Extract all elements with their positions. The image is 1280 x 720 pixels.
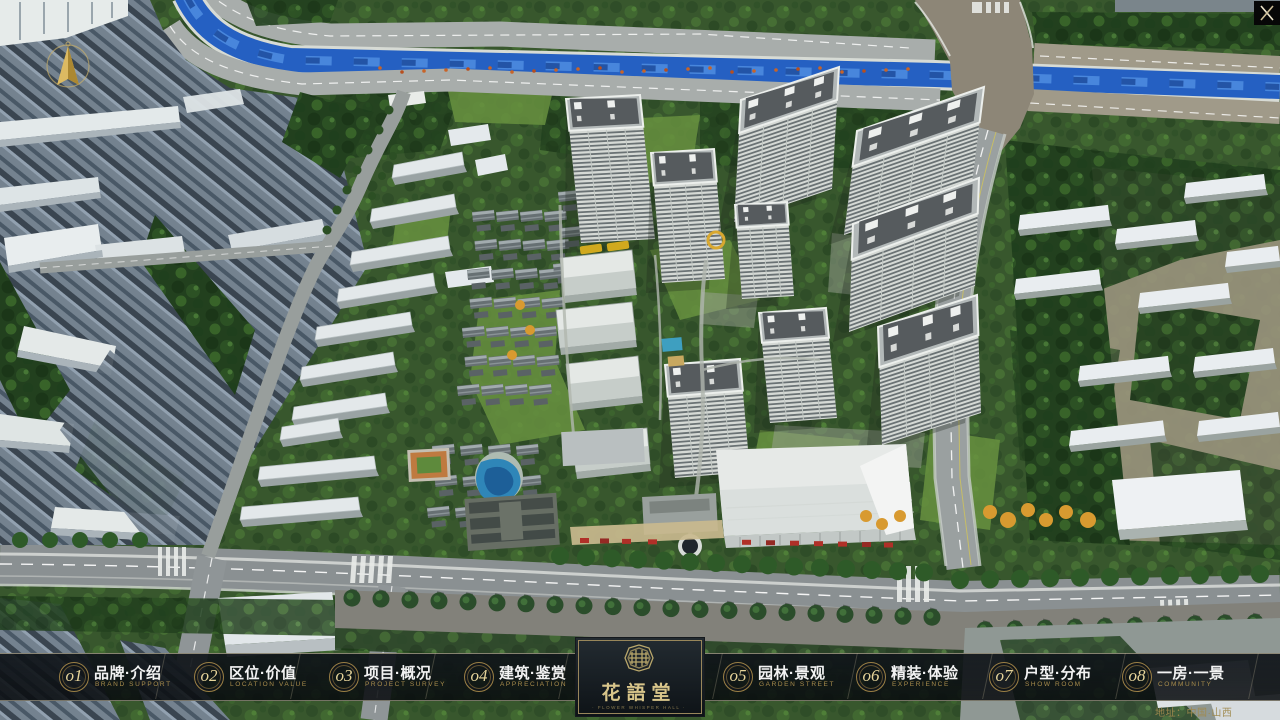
svg-text:花語堂: 花語堂: [601, 681, 676, 704]
svg-text:· FLOWER WHISPER HALL ·: · FLOWER WHISPER HALL ·: [592, 705, 686, 710]
